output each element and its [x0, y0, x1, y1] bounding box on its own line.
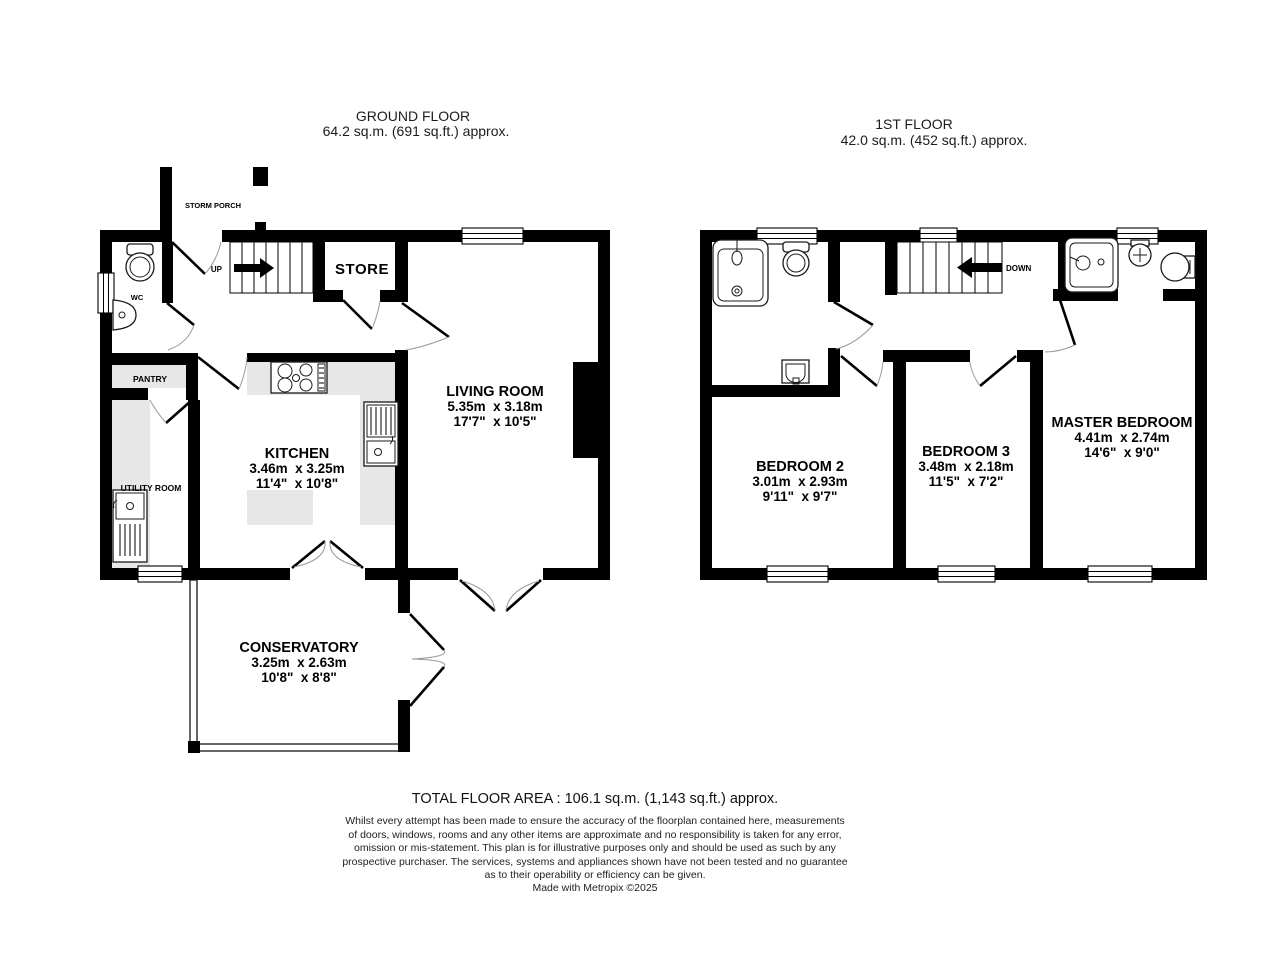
svg-text:KITCHEN: KITCHEN — [265, 446, 329, 462]
up-label: UP — [211, 265, 223, 274]
utility-label: UTILITY ROOM — [121, 483, 182, 493]
first-floor-plan: DOWN BEDROOM 2 3.01m x 2.93m 9'11" x 9'7… — [700, 228, 1207, 582]
ground-floor-title: GROUND FLOOR — [356, 108, 470, 124]
down-label: DOWN — [1006, 264, 1032, 273]
bedroom2-window — [767, 566, 828, 582]
hob-icon — [271, 362, 327, 393]
living-room-label: LIVING ROOM 5.35m x 3.18m 17'7" x 10'5" — [446, 384, 543, 429]
ground-floor-doors — [150, 242, 541, 706]
utility-window — [138, 566, 182, 582]
chimney-breast — [573, 362, 598, 458]
disclaimer-line-5: as to their operability or efficiency ca… — [484, 869, 705, 881]
disclaimer-line-4: prospective purchaser. The services, sys… — [342, 856, 847, 868]
kitchen-label: KITCHEN 3.46m x 3.25m 11'4" x 10'8" — [249, 446, 344, 491]
store-door — [343, 300, 380, 329]
kitchen-door — [198, 357, 247, 389]
svg-text:3.01m x 2.93m: 3.01m x 2.93m — [752, 474, 847, 489]
stairs-up — [230, 242, 313, 293]
ground-floor-heading: GROUND FLOOR 64.2 sq.m. (691 sq.ft.) app… — [323, 108, 510, 139]
master-window — [1088, 566, 1152, 582]
conservatory-french-doors — [410, 614, 445, 706]
svg-text:4.41m x 2.74m: 4.41m x 2.74m — [1074, 430, 1169, 445]
bathroom-basin-icon — [782, 360, 809, 384]
wc-label: WC — [131, 293, 144, 302]
svg-text:5.35m x 3.18m: 5.35m x 3.18m — [447, 399, 542, 414]
ensuite-basin-icon — [1129, 240, 1151, 266]
living-room-window — [462, 228, 523, 244]
svg-text:9'11" x 9'7": 9'11" x 9'7" — [763, 489, 838, 504]
svg-text:11'4" x 10'8": 11'4" x 10'8" — [256, 476, 338, 491]
floorplan-canvas: GROUND FLOOR 64.2 sq.m. (691 sq.ft.) app… — [0, 0, 1280, 962]
disclaimer-line-2: of doors, windows, rooms and any other i… — [348, 829, 841, 841]
disclaimer-line-1: Whilst every attempt has been made to en… — [345, 815, 845, 827]
shower-icon — [1065, 238, 1118, 292]
bathroom-toilet-icon — [783, 242, 809, 276]
svg-text:3.25m x 2.63m: 3.25m x 2.63m — [251, 655, 346, 670]
kitchen-french-doors — [292, 541, 363, 568]
store-label: STORE — [335, 261, 389, 278]
svg-text:BEDROOM 2: BEDROOM 2 — [756, 459, 844, 475]
svg-text:BEDROOM 3: BEDROOM 3 — [922, 444, 1010, 460]
credit-line: Made with Metropix ©2025 — [532, 882, 657, 894]
disclaimer-line-3: omission or mis-statement. This plan is … — [354, 842, 837, 854]
ground-floor-area: 64.2 sq.m. (691 sq.ft.) approx. — [323, 123, 510, 139]
utility-sink-icon — [113, 490, 147, 562]
bedroom3-window — [938, 566, 995, 582]
bathroom-door — [834, 302, 873, 349]
svg-text:14'6" x 9'0": 14'6" x 9'0" — [1084, 445, 1160, 460]
footer: TOTAL FLOOR AREA : 106.1 sq.m. (1,143 sq… — [342, 791, 847, 894]
storm-porch-label: STORM PORCH — [185, 201, 241, 210]
svg-text:MASTER BEDROOM: MASTER BEDROOM — [1052, 415, 1193, 431]
floorplan-page: GROUND FLOOR 64.2 sq.m. (691 sq.ft.) app… — [0, 0, 1280, 962]
pantry-door — [150, 400, 192, 423]
patio-doors — [460, 580, 541, 611]
first-floor-heading: 1ST FLOOR 42.0 sq.m. (452 sq.ft.) approx… — [841, 116, 1028, 148]
living-room-door — [402, 303, 449, 350]
conservatory-label: CONSERVATORY 3.25m x 2.63m 10'8" x 8'8" — [239, 640, 359, 685]
master-bedroom-label: MASTER BEDROOM 4.41m x 2.74m 14'6" x 9'0… — [1052, 415, 1193, 460]
wc-window — [98, 273, 114, 313]
ensuite-toilet-icon — [1161, 253, 1195, 281]
first-floor-area: 42.0 sq.m. (452 sq.ft.) approx. — [841, 132, 1028, 148]
bedroom3-label: BEDROOM 3 3.48m x 2.18m 11'5" x 7'2" — [918, 444, 1013, 489]
first-floor-title: 1ST FLOOR — [875, 116, 953, 132]
bedroom2-door — [841, 356, 883, 386]
svg-text:3.46m x 3.25m: 3.46m x 3.25m — [249, 461, 344, 476]
svg-text:LIVING ROOM: LIVING ROOM — [446, 384, 543, 400]
ground-floor-plan: STORM PORCH WC UP STORE PANTRY UTILITY R… — [98, 167, 610, 753]
pantry-label: PANTRY — [133, 374, 167, 384]
bedroom3-door — [970, 356, 1016, 386]
total-floor-area: TOTAL FLOOR AREA : 106.1 sq.m. (1,143 sq… — [412, 791, 778, 807]
svg-text:10'8" x 8'8": 10'8" x 8'8" — [261, 670, 337, 685]
svg-text:CONSERVATORY: CONSERVATORY — [239, 640, 359, 656]
svg-text:17'7" x 10'5": 17'7" x 10'5" — [453, 414, 536, 429]
bathtub-icon — [713, 240, 768, 306]
master-bedroom-door — [1045, 300, 1075, 352]
bedroom2-label: BEDROOM 2 3.01m x 2.93m 9'11" x 9'7" — [752, 459, 847, 504]
wc-basin-icon — [113, 300, 136, 330]
kitchen-sink-icon — [364, 402, 398, 466]
wc-door — [167, 303, 194, 350]
wc-toilet-icon — [126, 244, 154, 281]
stairs-down — [897, 242, 1002, 293]
svg-text:11'5" x 7'2": 11'5" x 7'2" — [929, 474, 1004, 489]
svg-text:3.48m x 2.18m: 3.48m x 2.18m — [918, 459, 1013, 474]
